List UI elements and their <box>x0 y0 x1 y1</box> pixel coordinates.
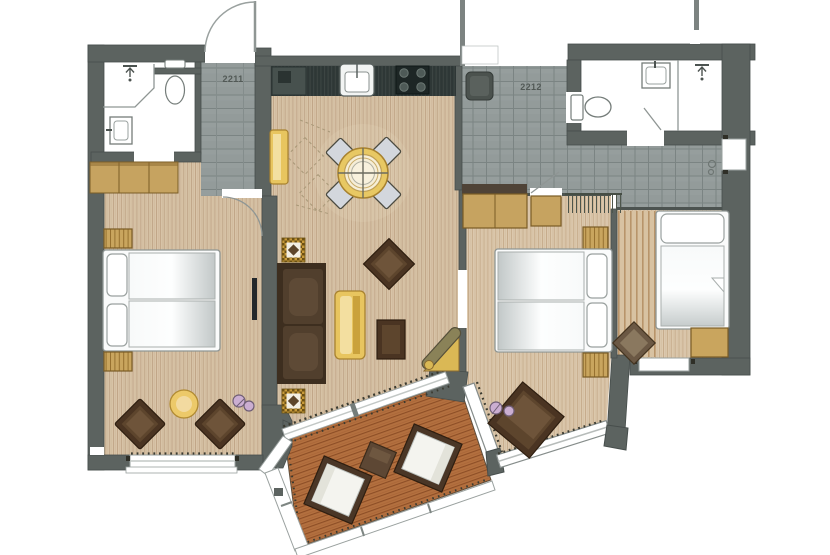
svg-text:2212: 2212 <box>520 82 542 92</box>
svg-text:2211: 2211 <box>222 74 243 84</box>
